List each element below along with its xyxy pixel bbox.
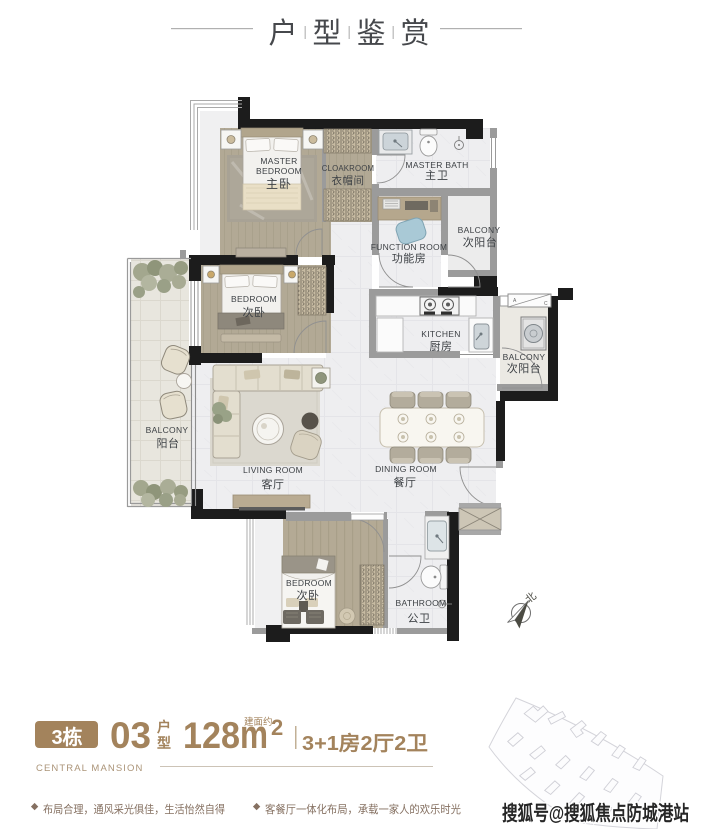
svg-text:户: 户 [268, 17, 297, 50]
svg-text:BEDROOM: BEDROOM [256, 166, 302, 176]
svg-text:衣帽间: 衣帽间 [332, 174, 365, 187]
svg-text:DINING ROOM: DINING ROOM [375, 464, 437, 474]
svg-text:C: C [544, 301, 548, 307]
svg-text:LIVING ROOM: LIVING ROOM [243, 465, 303, 475]
svg-text:次卧: 次卧 [297, 588, 320, 602]
svg-text:建面约: 建面约 [244, 716, 273, 728]
svg-text:型: 型 [157, 735, 171, 751]
svg-text:2: 2 [271, 715, 283, 740]
svg-text:次阳台: 次阳台 [507, 361, 542, 375]
svg-text:型: 型 [312, 17, 341, 50]
svg-text:MASTER BATH: MASTER BATH [405, 160, 468, 170]
svg-text:布局合理，通风采光俱佳，生活怡然自得: 布局合理，通风采光俱佳，生活怡然自得 [43, 802, 225, 816]
svg-text:阳台: 阳台 [157, 436, 180, 450]
svg-text:厨房: 厨房 [430, 340, 453, 353]
svg-text:128: 128 [183, 715, 240, 756]
svg-text:客厅: 客厅 [262, 477, 285, 491]
svg-text:户: 户 [157, 719, 171, 735]
svg-text:功能房: 功能房 [392, 251, 427, 265]
svg-text:BALCONY: BALCONY [458, 225, 501, 235]
svg-text:KITCHEN: KITCHEN [421, 329, 460, 339]
svg-text:03: 03 [110, 715, 151, 756]
svg-text:公卫: 公卫 [408, 613, 431, 625]
svg-text:CLOAKROOM: CLOAKROOM [322, 164, 375, 173]
svg-text:3+1房2厅2卫: 3+1房2厅2卫 [302, 731, 428, 755]
svg-text:CENTRAL MANSION: CENTRAL MANSION [36, 763, 143, 774]
svg-text:3栋: 3栋 [51, 725, 82, 749]
svg-text:客餐厅一体化布局，承载一家人的欢乐时光: 客餐厅一体化布局，承载一家人的欢乐时光 [265, 802, 461, 816]
svg-text:餐厅: 餐厅 [394, 475, 417, 489]
svg-text:主卧: 主卧 [266, 177, 292, 191]
svg-text:BEDROOM: BEDROOM [286, 578, 332, 588]
svg-text:次阳台: 次阳台 [463, 235, 498, 249]
svg-text:次卧: 次卧 [243, 305, 266, 319]
svg-text:BALCONY: BALCONY [503, 352, 546, 362]
svg-text:BEDROOM: BEDROOM [231, 294, 277, 304]
svg-text:FUNCTION ROOM: FUNCTION ROOM [371, 242, 448, 252]
svg-text:BALCONY: BALCONY [146, 425, 189, 435]
svg-text:鉴: 鉴 [356, 17, 385, 50]
svg-text:BATHROOM: BATHROOM [396, 598, 447, 608]
svg-text:赏: 赏 [400, 17, 429, 50]
svg-text:主卫: 主卫 [425, 169, 449, 182]
svg-text:搜狐号@搜狐焦点防城港站: 搜狐号@搜狐焦点防城港站 [502, 801, 689, 825]
svg-text:MASTER: MASTER [260, 156, 297, 166]
